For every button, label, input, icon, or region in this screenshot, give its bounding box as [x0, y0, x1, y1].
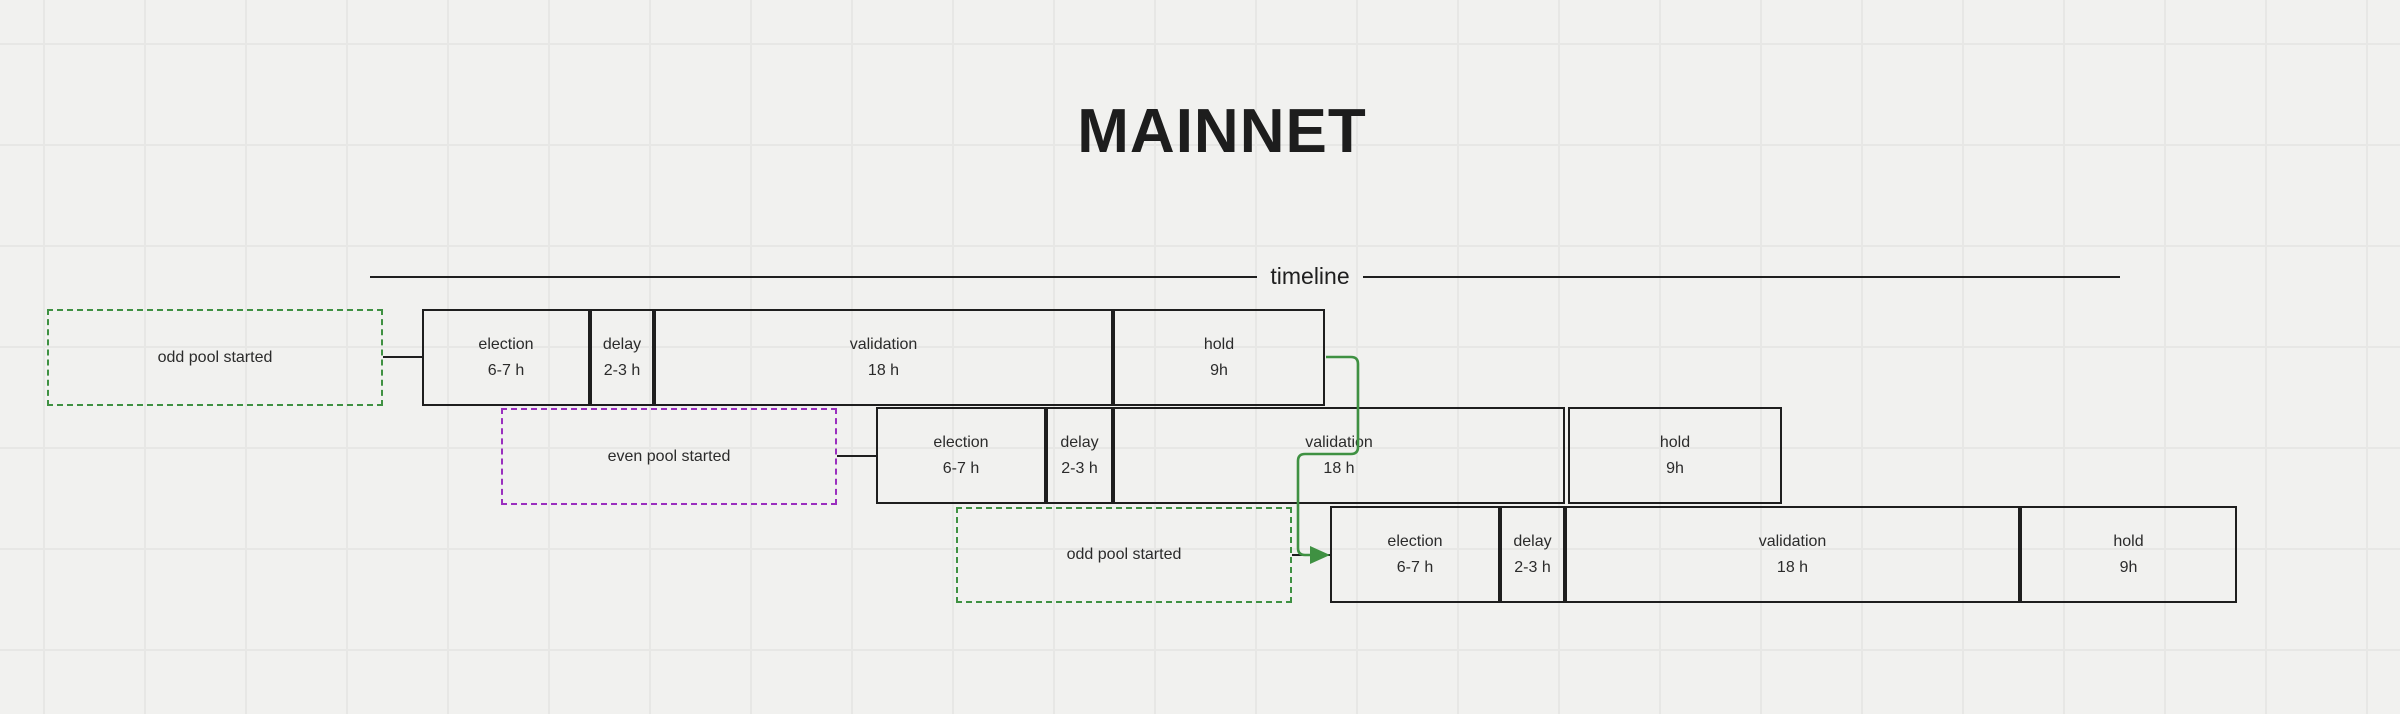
connector-row3[interactable]: [1292, 554, 1330, 556]
timeline-label: timeline: [1270, 263, 1349, 290]
phase-box-election-row1[interactable]: election 6-7 h: [422, 309, 590, 406]
phase-box-validation-row2[interactable]: validation 18 h: [1113, 407, 1565, 504]
phase-box-election-row3[interactable]: election 6-7 h: [1330, 506, 1500, 603]
phase-box-delay-row2[interactable]: delay 2-3 h: [1046, 407, 1113, 504]
phase-box-hold-row3[interactable]: hold 9h: [2020, 506, 2237, 603]
timeline-line-right[interactable]: [1363, 276, 2120, 278]
phase-box-election-row2[interactable]: election 6-7 h: [876, 407, 1046, 504]
phase-box-delay-row1[interactable]: delay 2-3 h: [590, 309, 654, 406]
phase-duration: 9h: [1666, 456, 1684, 482]
phase-name: election: [933, 430, 988, 456]
phase-duration: 2-3 h: [604, 358, 640, 384]
phase-name: election: [478, 332, 533, 358]
phase-duration: 9h: [2120, 555, 2138, 581]
trigger-box-odd-pool-2[interactable]: odd pool started: [956, 507, 1292, 603]
phase-duration: 18 h: [868, 358, 899, 384]
trigger-label: odd pool started: [1067, 546, 1182, 564]
trigger-label: even pool started: [608, 448, 731, 466]
phase-duration: 9h: [1210, 358, 1228, 384]
phase-name: delay: [1060, 430, 1098, 456]
phase-name: validation: [1305, 430, 1373, 456]
phase-box-hold-row2[interactable]: hold 9h: [1568, 407, 1782, 504]
phase-name: hold: [1660, 430, 1690, 456]
phase-name: delay: [603, 332, 641, 358]
phase-name: election: [1387, 529, 1442, 555]
phase-name: validation: [850, 332, 918, 358]
phase-duration: 18 h: [1323, 456, 1354, 482]
phase-duration: 2-3 h: [1061, 456, 1097, 482]
connector-row1[interactable]: [383, 356, 422, 358]
trigger-label: odd pool started: [158, 349, 273, 367]
phase-duration: 2-3 h: [1514, 555, 1550, 581]
diagram-canvas: MAINNET timeline odd pool started electi…: [0, 0, 2400, 714]
phase-duration: 6-7 h: [488, 358, 524, 384]
phase-duration: 6-7 h: [943, 456, 979, 482]
phase-box-hold-row1[interactable]: hold 9h: [1113, 309, 1325, 406]
phase-box-delay-row3[interactable]: delay 2-3 h: [1500, 506, 1565, 603]
phase-box-validation-row3[interactable]: validation 18 h: [1565, 506, 2020, 603]
phase-name: validation: [1759, 529, 1827, 555]
phase-name: hold: [1204, 332, 1234, 358]
phase-box-validation-row1[interactable]: validation 18 h: [654, 309, 1113, 406]
trigger-box-odd-pool-1[interactable]: odd pool started: [47, 309, 383, 406]
phase-duration: 18 h: [1777, 555, 1808, 581]
phase-name: hold: [2113, 529, 2143, 555]
page-title: MAINNET: [1022, 96, 1422, 167]
phase-name: delay: [1513, 529, 1551, 555]
connector-row2[interactable]: [837, 455, 876, 457]
trigger-box-even-pool[interactable]: even pool started: [501, 408, 837, 505]
timeline-line-left[interactable]: [370, 276, 1257, 278]
phase-duration: 6-7 h: [1397, 555, 1433, 581]
